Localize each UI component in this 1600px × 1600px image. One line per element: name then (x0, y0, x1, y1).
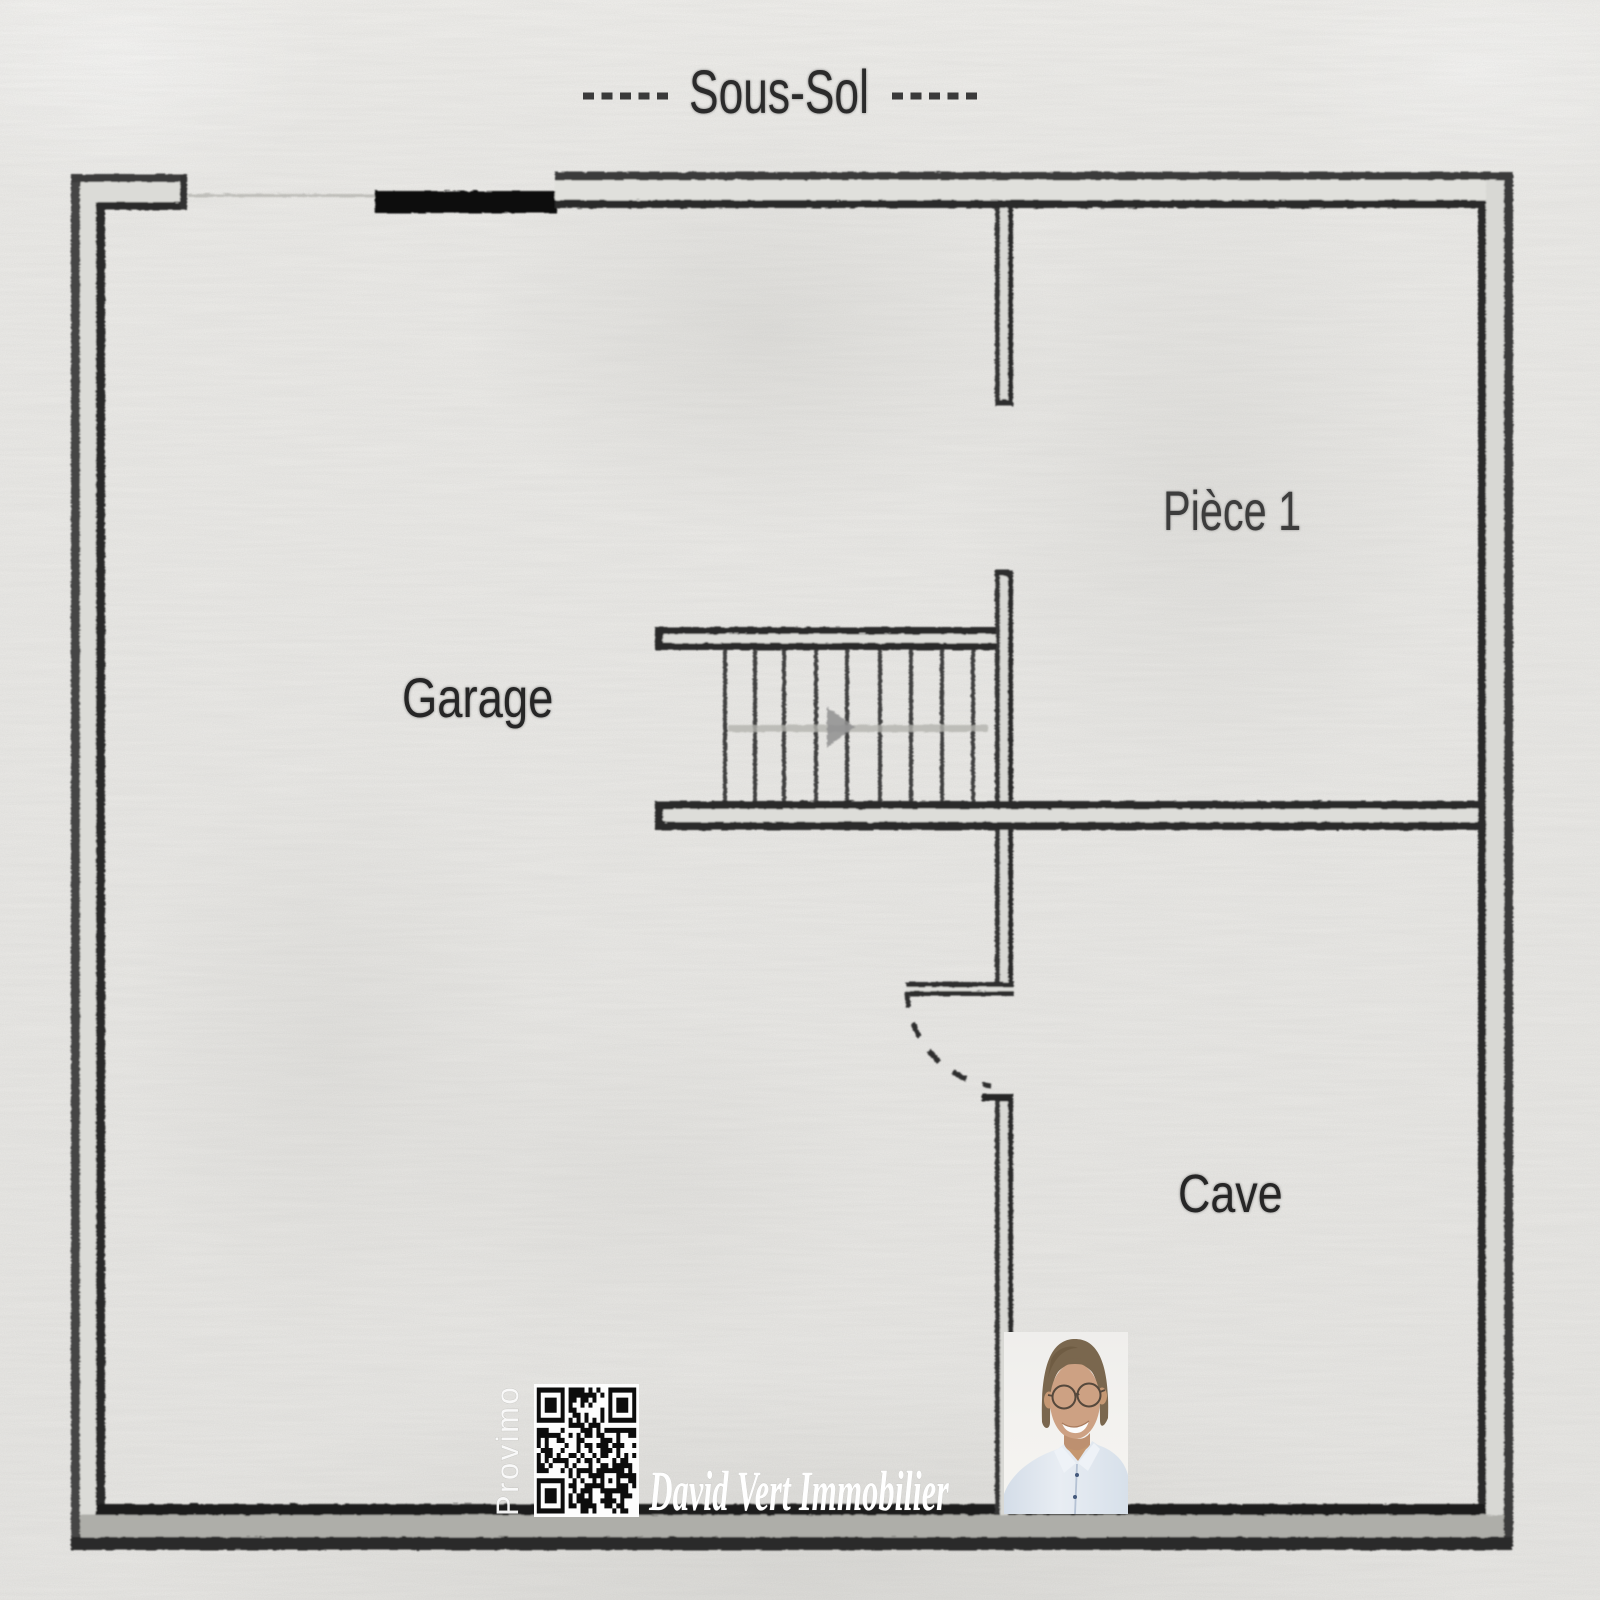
svg-text:Provimo: Provimo (490, 1385, 525, 1516)
svg-text:David Vert Immobilier: David Vert Immobilier (649, 1460, 950, 1523)
